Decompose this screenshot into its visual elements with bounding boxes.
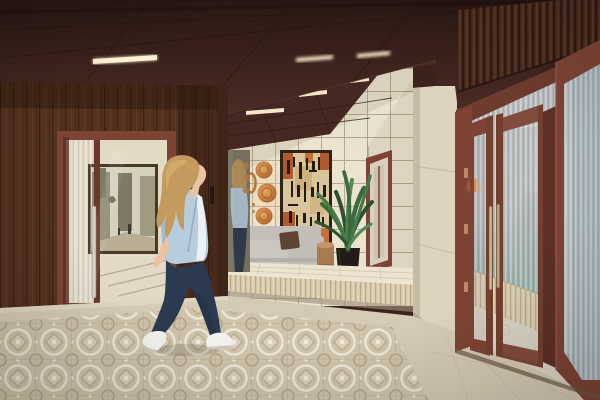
- vignette-overlay: [0, 0, 600, 400]
- scene-canvas: [0, 0, 600, 400]
- lobby-render: [0, 0, 600, 400]
